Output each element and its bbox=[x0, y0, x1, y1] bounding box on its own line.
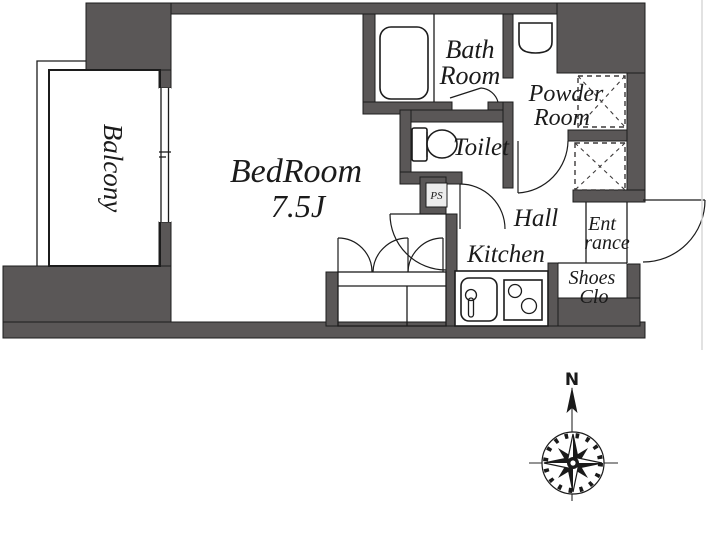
kitchen-counter bbox=[455, 271, 548, 326]
bedroom-closet bbox=[338, 238, 446, 326]
floor-plan: Balcony BedRoom 7.5J Bath Room Toilet Po… bbox=[0, 0, 709, 533]
room-label-bedroom: BedRoom bbox=[230, 153, 362, 190]
toilet-door-swing bbox=[460, 184, 505, 229]
room-size-bedroom: 7.5J bbox=[271, 188, 327, 224]
bedroom-door-swing bbox=[390, 214, 446, 270]
compass: N bbox=[529, 370, 618, 501]
ps-label: PS bbox=[429, 190, 443, 202]
room-label-entrance-2: rance bbox=[584, 232, 630, 254]
entrance-door-swing bbox=[643, 200, 705, 262]
stove-icon bbox=[504, 280, 542, 320]
room-label-shoes-2: Clo bbox=[580, 286, 609, 308]
room-label-bath-1: Bath bbox=[445, 35, 494, 64]
bathtub-icon bbox=[380, 14, 434, 102]
room-label-balcony: Balcony bbox=[98, 124, 128, 212]
room-label-powder-2: Room bbox=[533, 105, 590, 131]
floor-plan-canvas: Balcony BedRoom 7.5J Bath Room Toilet Po… bbox=[0, 0, 709, 533]
storage-cabinet-icon bbox=[575, 143, 625, 190]
kitchen-sink-icon bbox=[461, 278, 497, 321]
powder-door-swing bbox=[518, 141, 568, 193]
bedroom-window-icon bbox=[159, 88, 171, 222]
compass-rose-icon bbox=[529, 432, 618, 494]
room-label-kitchen: Kitchen bbox=[466, 241, 545, 268]
balcony-outer-rail bbox=[37, 61, 86, 266]
room-label-toilet: Toilet bbox=[453, 134, 510, 161]
room-label-powder-1: Powder bbox=[528, 81, 604, 107]
room-label-hall: Hall bbox=[513, 205, 559, 232]
bath-door-swing bbox=[450, 88, 498, 102]
room-label-bath-2: Room bbox=[439, 61, 501, 90]
toilet-fixture-icon bbox=[412, 128, 457, 161]
washbasin-icon bbox=[519, 23, 552, 53]
